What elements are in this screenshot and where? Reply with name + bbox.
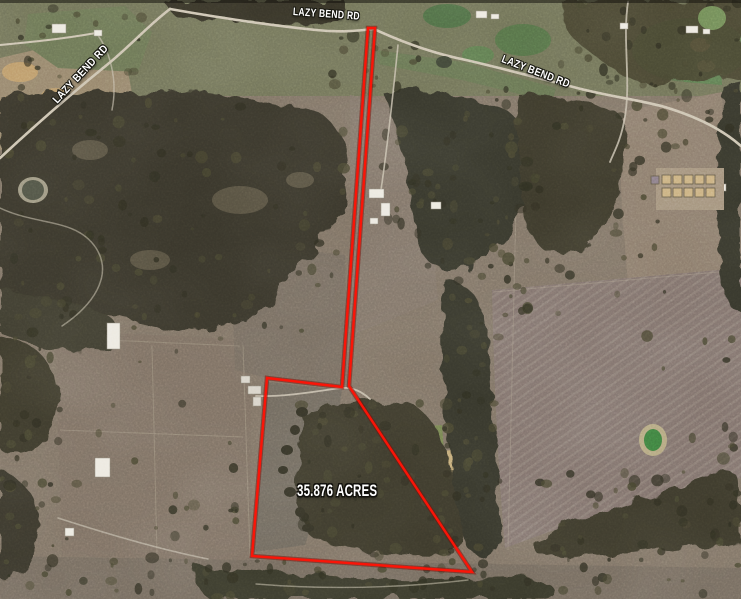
top-edge-shade (0, 0, 741, 3)
parcel-area-label: 35.876 ACRES (297, 481, 377, 501)
satellite-image (0, 0, 741, 599)
aerial-map: LAZY BEND RD LAZY BEND RD LAZY BEND RD 3… (0, 0, 741, 599)
